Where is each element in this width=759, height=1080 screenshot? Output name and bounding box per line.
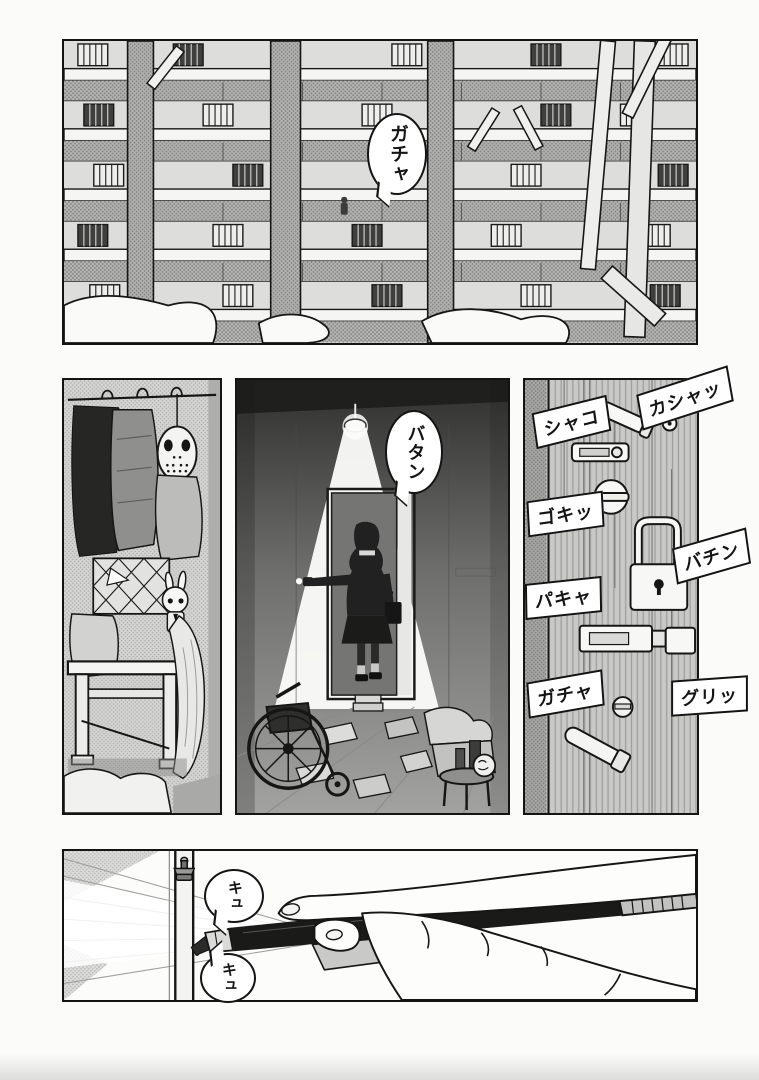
sfx-text: バタン [405, 424, 424, 481]
hand-writing-art [64, 851, 696, 1000]
hanging-cloth [156, 475, 203, 560]
cluttered-room-art [64, 380, 220, 813]
manga-page: ガチャ [0, 0, 759, 1080]
panel-cluttered-room [62, 378, 222, 815]
sfx-bubble-squeak-2: キュ [200, 953, 256, 1003]
panel-hallway-light: バタン [235, 378, 510, 815]
lattice-crate [93, 558, 169, 613]
sfx-text: ガチャ [387, 124, 407, 184]
deadbolt [580, 626, 695, 654]
artist-stamp [474, 755, 496, 777]
sfx-bubble-door-rattle: ガチャ [367, 113, 427, 195]
sfx-text: キュ [220, 962, 236, 994]
floor-row [64, 222, 696, 282]
round-latch [613, 697, 633, 717]
sfx-bubble-door-slam: バタン [385, 410, 443, 494]
floor-rubble [64, 769, 171, 813]
tiny-figure [341, 197, 348, 215]
hanging-garment [111, 410, 158, 551]
page-edge-shadow [0, 1054, 759, 1080]
slide-bolt [572, 443, 629, 461]
sfx-text: キュ [226, 880, 242, 912]
panel-door-locks: シャコ カシャッ ゴキッ バチン パキャ ガチャ グリッ [523, 378, 699, 815]
sfx-tag-guri: グリッ [671, 675, 748, 716]
panel-apartment-exterior: ガチャ [62, 39, 698, 345]
hallway-art [237, 380, 508, 813]
sfx-bubble-squeak-1: キュ [204, 869, 264, 923]
panel-hand-writing: キュ キュ [62, 849, 698, 1002]
